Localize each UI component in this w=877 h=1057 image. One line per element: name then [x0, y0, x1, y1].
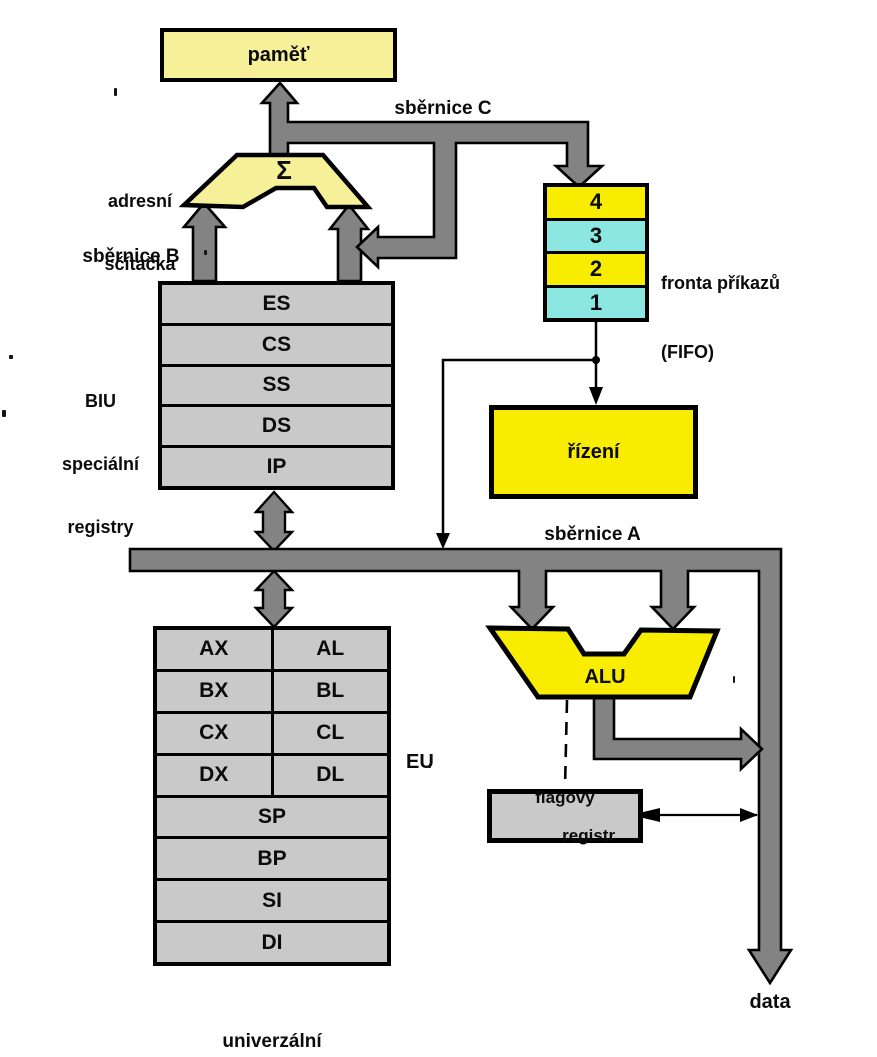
- register-cx: CX: [157, 714, 271, 753]
- alu-output-arrow: [594, 697, 762, 769]
- eu-label: EU: [406, 751, 434, 773]
- alu-flag-dashed-line: [565, 700, 567, 788]
- memory-label: paměť: [248, 44, 310, 66]
- scan-artifact: [428, 765, 431, 768]
- register-cs: CS: [162, 323, 391, 364]
- register-row-c: CX CL: [157, 711, 387, 753]
- scan-artifact: [204, 250, 207, 255]
- flag-register-line1: flagový: [535, 788, 595, 807]
- register-ip: IP: [162, 445, 391, 486]
- alu-label: ALU: [575, 666, 635, 688]
- flag-register-box: flagový registr: [487, 789, 643, 843]
- biu-label-line3: registry: [38, 517, 163, 538]
- register-row-d: DX DL: [157, 753, 387, 795]
- bus-a-feed-arrowhead: [436, 533, 450, 549]
- register-dx: DX: [157, 756, 271, 795]
- register-sp: SP: [157, 795, 387, 837]
- biu-label-line2: speciální: [38, 454, 163, 475]
- data-output-label: data: [735, 991, 805, 1013]
- cpu-caption-line1: univerzální: [182, 1030, 362, 1053]
- scan-artifact: [9, 355, 13, 359]
- control-box: řízení: [489, 405, 698, 499]
- control-label: řízení: [567, 441, 619, 463]
- eu-register-table: AX AL BX BL CX CL DX DL SP BP SI DI: [153, 626, 391, 966]
- fifo-cell-3: 3: [547, 218, 645, 252]
- biu-register-stack: ES CS SS DS IP: [158, 281, 395, 490]
- bus-a-eu-arrow: [256, 571, 292, 627]
- memory-box: paměť: [160, 28, 397, 82]
- control-arrowhead: [589, 387, 603, 405]
- register-row-a: AX AL: [157, 630, 387, 669]
- flag-arrowhead-right: [740, 808, 758, 822]
- scan-artifact: [2, 410, 6, 417]
- register-si: SI: [157, 878, 387, 920]
- fifo-queue: 4 3 2 1: [543, 183, 649, 322]
- flag-register-line2: registr: [562, 826, 615, 845]
- register-al: AL: [271, 630, 388, 669]
- fifo-cell-2: 2: [547, 251, 645, 285]
- register-di: DI: [157, 920, 387, 962]
- scan-artifact: [114, 88, 117, 96]
- register-ax: AX: [157, 630, 271, 669]
- fifo-label: fronta příkazů (FIFO): [661, 226, 826, 410]
- adder-label-line1: adresní: [85, 191, 195, 212]
- register-ds: DS: [162, 404, 391, 445]
- register-row-b: BX BL: [157, 669, 387, 711]
- fifo-label-line1: fronta příkazů: [661, 272, 826, 295]
- register-ss: SS: [162, 364, 391, 405]
- bus-c-label: sběrnice C: [384, 98, 502, 119]
- register-cl: CL: [271, 714, 388, 753]
- cpu-caption: univerzální registry CPU: [182, 984, 362, 1057]
- cpu-architecture-diagram: paměť Σ adresní sčítačka sběrnice C sběr…: [0, 0, 877, 1057]
- scan-artifact: [733, 676, 735, 683]
- fifo-cell-4: 4: [547, 187, 645, 218]
- register-bx: BX: [157, 672, 271, 711]
- bus-b-label: sběrnice B: [72, 246, 190, 267]
- biu-label-line1: BIU: [38, 391, 163, 412]
- bus-a-label: sběrnice A: [535, 524, 650, 545]
- fifo-cell-1: 1: [547, 285, 645, 319]
- adder-symbol: Σ: [264, 156, 304, 185]
- register-bl: BL: [271, 672, 388, 711]
- biu-bus-a-arrow: [256, 492, 292, 551]
- biu-label: BIU speciální registry: [38, 349, 163, 580]
- register-dl: DL: [271, 756, 388, 795]
- flag-register-label: flagový registr: [515, 788, 615, 845]
- fifo-label-line2: (FIFO): [661, 341, 826, 364]
- register-es: ES: [162, 285, 391, 323]
- register-bp: BP: [157, 836, 387, 878]
